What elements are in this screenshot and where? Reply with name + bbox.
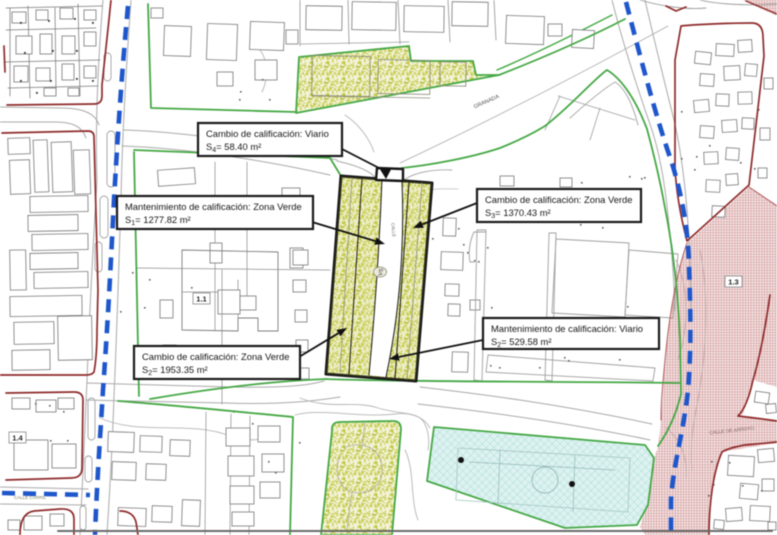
svg-text:1.3: 1.3 — [728, 278, 738, 287]
svg-text:1.1: 1.1 — [196, 295, 206, 304]
svg-text:1.4: 1.4 — [12, 434, 23, 443]
svg-text:Mantenimiento de calificación:: Mantenimiento de calificación: Zona Verd… — [125, 201, 302, 212]
svg-text:Mantenimiento de calificación:: Mantenimiento de calificación: Viario — [491, 323, 643, 334]
svg-text:Cambio de calificación: Zona V: Cambio de calificación: Zona Verde — [142, 351, 289, 362]
svg-text:CALLE CARRIL: CALLE CARRIL — [14, 495, 47, 500]
svg-text:Cambio de calificación: Zona V: Cambio de calificación: Zona Verde — [485, 194, 632, 205]
svg-text:Cambio de calificación: Viario: Cambio de calificación: Viario — [206, 128, 329, 139]
